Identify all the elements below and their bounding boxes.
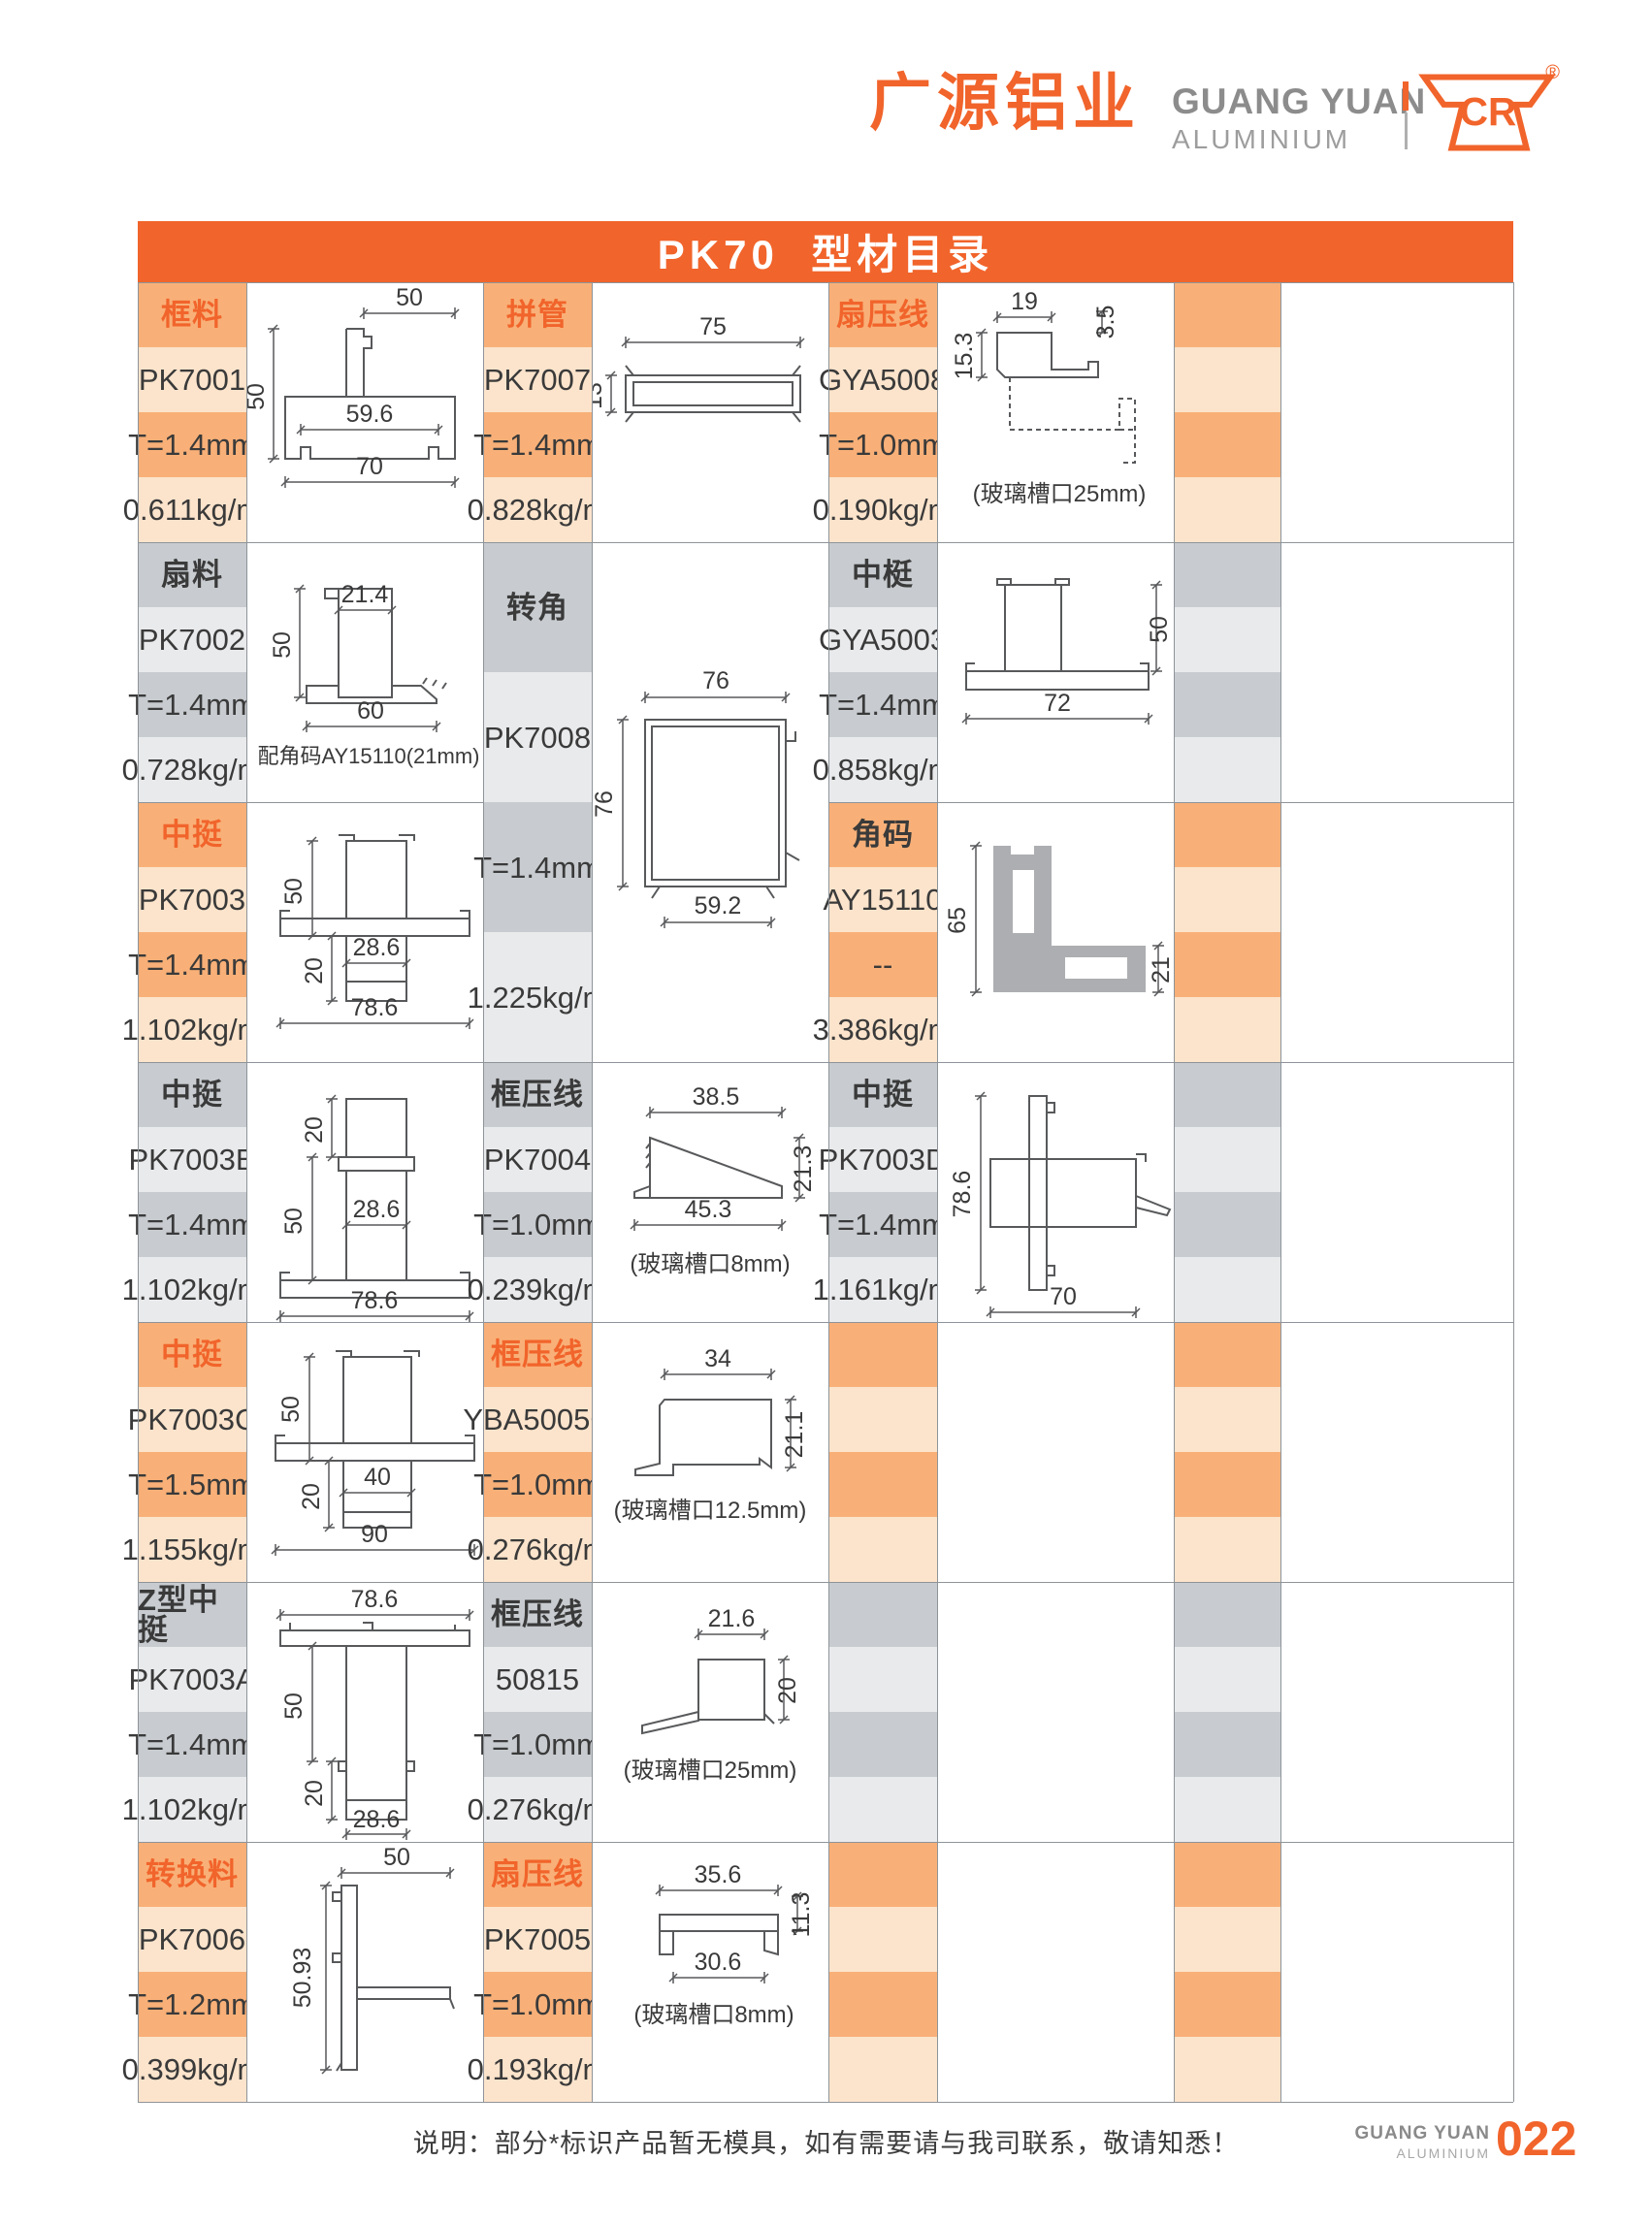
drawing-cell-empty-c4g1 xyxy=(1280,282,1513,542)
cell-category-PK7005: 扇压线 xyxy=(483,1842,592,1907)
cell-category-AY15110: 角码 xyxy=(828,802,937,867)
drawing-caption: (玻璃槽口8mm) xyxy=(630,1251,790,1277)
cell-weight-empty-c4g3 xyxy=(1174,997,1280,1062)
cell-weight-PK7001: 0.611kg/m xyxy=(138,477,246,542)
grid-hline xyxy=(138,542,1513,543)
drawing-cell-empty-c4g3 xyxy=(1280,802,1513,1062)
cell-category-empty-c4g3 xyxy=(1174,802,1280,867)
grid-vline xyxy=(592,282,593,2102)
drawing-cell-empty-c4g6 xyxy=(1280,1582,1513,1842)
dimension-label: 78.6 xyxy=(351,994,399,1021)
dimension-label: 50 xyxy=(280,1693,308,1720)
dimension-label: 59.2 xyxy=(695,892,742,919)
cell-thickness-PK7003: T=1.4mm xyxy=(138,932,246,997)
cell-weight-PK7006: 0.399kg/m xyxy=(138,2037,246,2102)
cell-thickness-PK7003C: T=1.5mm xyxy=(138,1452,246,1517)
grid-hline xyxy=(828,802,1513,803)
dimension-label: 20 xyxy=(301,957,328,984)
cell-thickness-PK7003B: T=1.4mm xyxy=(138,1192,246,1257)
cell-model-empty-c4g7 xyxy=(1174,1907,1280,1972)
drawing-cell-PK7001: 505059.670 xyxy=(246,282,483,542)
cell-thickness-PK7005: T=1.0mm xyxy=(483,1972,592,2037)
cell-thickness-YBA5005C: T=1.0mm xyxy=(483,1452,592,1517)
divider-gray-segment xyxy=(1405,113,1408,149)
cell-thickness-empty-c3g5 xyxy=(828,1452,937,1517)
cell-weight-PK7003: 1.102kg/m xyxy=(138,997,246,1062)
grid-vline xyxy=(1174,282,1175,2102)
dimension-label: 59.6 xyxy=(346,401,394,428)
cell-model-PK7007: PK7007 xyxy=(483,347,592,412)
cell-thickness-PK7003D: T=1.4mm xyxy=(828,1192,937,1257)
cell-weight-AY15110: 3.386kg/m xyxy=(828,997,937,1062)
cell-weight-empty-c4g4 xyxy=(1174,1257,1280,1322)
cell-category-PK7006: 转换料 xyxy=(138,1842,246,1907)
dimension-label: 28.6 xyxy=(353,1806,401,1833)
cell-category-PK7002: 扇料 xyxy=(138,542,246,607)
cell-weight-50815: 0.276kg/m xyxy=(483,1777,592,1842)
dimension-label: 21.1 xyxy=(781,1411,808,1459)
dimension-label: 30.6 xyxy=(695,1949,742,1976)
catalog-title: PK70 型材目录 xyxy=(138,221,1513,282)
dimension-label: 19 xyxy=(1011,288,1038,315)
cell-model-PK7005: PK7005 xyxy=(483,1907,592,1972)
cell-thickness-empty-c4g4 xyxy=(1174,1192,1280,1257)
cell-weight-empty-c3g6 xyxy=(828,1777,937,1842)
footer-brand-line2: ALUMINIUM xyxy=(1290,2146,1490,2160)
grid-hline xyxy=(138,1062,1513,1063)
profile-drawing-PK7004: 38.521.345.3(玻璃槽口8mm) xyxy=(592,1062,828,1322)
grid-hline xyxy=(138,282,1513,283)
dimension-label: 72 xyxy=(1044,690,1071,717)
brand-en-line1: GUANG YUAN xyxy=(1172,83,1426,119)
dimension-label: 50 xyxy=(280,1208,308,1235)
cell-weight-empty-c4g6 xyxy=(1174,1777,1280,1842)
cell-thickness-PK7006: T=1.2mm xyxy=(138,1972,246,2037)
brand-chinese-name: 广源铝业 xyxy=(869,72,1141,134)
brand-en-line2: ALUMINIUM xyxy=(1172,126,1426,153)
grid-hline xyxy=(138,1582,1513,1583)
grid-vline xyxy=(937,282,938,2102)
cell-thickness-PK7008: T=1.4mm xyxy=(483,802,592,932)
drawing-cell-empty-c4g2 xyxy=(1280,542,1513,802)
drawing-cell-PK7003: 502028.678.6 xyxy=(246,802,483,1062)
cell-model-50815: 50815 xyxy=(483,1647,592,1712)
cell-thickness-empty-c4g5 xyxy=(1174,1452,1280,1517)
drawing-cell-GYA5003: 5072 xyxy=(937,542,1174,802)
cell-weight-empty-c3g7 xyxy=(828,2037,937,2102)
cell-category-PK7003C: 中挺 xyxy=(138,1322,246,1387)
grid-vline xyxy=(1513,282,1514,2102)
dimension-label: 34 xyxy=(704,1345,731,1372)
dimension-label: 78.6 xyxy=(351,1586,399,1613)
profile-drawing-YBA5005C: 3421.1(玻璃槽口12.5mm) xyxy=(592,1322,828,1582)
dimension-label: 50 xyxy=(277,1396,305,1423)
drawing-cell-PK7003D: 78.670 xyxy=(937,1062,1174,1322)
cell-model-AY15110: AY15110 xyxy=(828,867,937,932)
dimension-label: 50 xyxy=(396,284,423,311)
profile-drawing-PK7001: 505059.670 xyxy=(246,282,483,542)
cell-category-PK7003A: Z型中挺 xyxy=(138,1582,246,1647)
cell-category-GYA5008: 扇压线 xyxy=(828,282,937,347)
drawing-cell-empty-c3g7 xyxy=(937,1842,1174,2102)
drawing-cell-empty-c4g5 xyxy=(1280,1322,1513,1582)
cell-weight-PK7002: 0.728kg/m xyxy=(138,737,246,802)
cell-category-PK7008: 转角 xyxy=(483,542,592,672)
cell-thickness-empty-c4g7 xyxy=(1174,1972,1280,2037)
cell-category-50815: 框压线 xyxy=(483,1582,592,1647)
profile-drawing-PK7007: 7513 xyxy=(592,282,828,542)
cell-weight-PK7003A: 1.102kg/m xyxy=(138,1777,246,1842)
drawing-caption: 配角码AY15110(21mm) xyxy=(257,744,479,768)
drawing-cell-YBA5005C: 3421.1(玻璃槽口12.5mm) xyxy=(592,1322,828,1582)
grid-hline xyxy=(138,1842,1513,1843)
cell-model-GYA5008: GYA5008 xyxy=(828,347,937,412)
dimension-label: 13 xyxy=(592,382,607,409)
cr-logo-shape: CR xyxy=(1418,70,1556,155)
profile-drawing-PK7006: 5050.93 xyxy=(246,1842,483,2102)
divider-orange-segment xyxy=(1403,81,1409,111)
dimension-label: 65 xyxy=(944,907,971,934)
cell-thickness-empty-c4g2 xyxy=(1174,672,1280,737)
dimension-label: 45.3 xyxy=(685,1196,732,1223)
drawing-cell-empty-c4g7 xyxy=(1280,1842,1513,2102)
profile-drawing-50815: 21.620(玻璃槽口25mm) xyxy=(592,1582,828,1842)
drawing-cell-PK7003C: 50204090 xyxy=(246,1322,483,1582)
cell-category-PK7003: 中挺 xyxy=(138,802,246,867)
cell-model-YBA5005C: YBA5005C xyxy=(483,1387,592,1452)
footer-brand-line1: GUANG YUAN xyxy=(1290,2124,1490,2143)
cell-weight-empty-c3g5 xyxy=(828,1517,937,1582)
drawing-cell-empty-c4g4 xyxy=(1280,1062,1513,1322)
cell-category-empty-c4g2 xyxy=(1174,542,1280,607)
cell-category-empty-c4g5 xyxy=(1174,1322,1280,1387)
profile-drawing-PK7003A: 78.6502028.6 xyxy=(246,1582,483,1842)
cell-category-empty-c3g7 xyxy=(828,1842,937,1907)
cell-weight-PK7004: 0.239kg/m xyxy=(483,1257,592,1322)
drawing-caption: (玻璃槽口25mm) xyxy=(973,481,1147,507)
dimension-label: 76 xyxy=(702,667,729,694)
dimension-label: 78.6 xyxy=(949,1171,976,1218)
drawing-cell-empty-c3g5 xyxy=(937,1322,1174,1582)
dimension-label: 50 xyxy=(246,383,270,410)
drawing-cell-PK7004: 38.521.345.3(玻璃槽口8mm) xyxy=(592,1062,828,1322)
cell-weight-empty-c4g5 xyxy=(1174,1517,1280,1582)
drawing-caption: (玻璃槽口12.5mm) xyxy=(614,1498,807,1524)
cell-model-empty-c3g6 xyxy=(828,1647,937,1712)
cell-thickness-PK7001: T=1.4mm xyxy=(138,412,246,477)
cell-weight-PK7003D: 1.161kg/m xyxy=(828,1257,937,1322)
cell-model-PK7002: PK7002 xyxy=(138,607,246,672)
cell-model-PK7008: PK7008 xyxy=(483,672,592,802)
cell-category-PK7001: 框料 xyxy=(138,282,246,347)
cell-category-PK7003D: 中挺 xyxy=(828,1062,937,1127)
dimension-label: 40 xyxy=(364,1464,391,1491)
dimension-label: 50 xyxy=(383,1844,410,1871)
cell-category-GYA5003: 中梃 xyxy=(828,542,937,607)
cell-model-empty-c3g5 xyxy=(828,1387,937,1452)
drawing-cell-AY15110: 6521 xyxy=(937,802,1174,1062)
cell-category-PK7004: 框压线 xyxy=(483,1062,592,1127)
cell-model-empty-c4g5 xyxy=(1174,1387,1280,1452)
cell-category-empty-c4g4 xyxy=(1174,1062,1280,1127)
profile-drawing-PK7003D: 78.670 xyxy=(937,1062,1174,1322)
cell-category-empty-c4g6 xyxy=(1174,1582,1280,1647)
dimension-label: 3.5 xyxy=(1092,306,1119,339)
cell-thickness-PK7004: T=1.0mm xyxy=(483,1192,592,1257)
dimension-label: 78.6 xyxy=(351,1287,399,1314)
cell-weight-YBA5005C: 0.276kg/m xyxy=(483,1517,592,1582)
dimension-label: 20 xyxy=(774,1677,801,1704)
cell-model-empty-c4g1 xyxy=(1174,347,1280,412)
cell-weight-empty-c4g7 xyxy=(1174,2037,1280,2102)
dimension-label: 15.3 xyxy=(951,333,978,380)
cell-model-GYA5003: GYA5003 xyxy=(828,607,937,672)
footer-brand: GUANG YUAN ALUMINIUM xyxy=(1290,2124,1490,2160)
grid-vline xyxy=(246,282,247,2102)
cell-model-PK7003B: PK7003B xyxy=(138,1127,246,1192)
dimension-label: 35.6 xyxy=(695,1861,742,1888)
cell-weight-GYA5008: 0.190kg/m xyxy=(828,477,937,542)
cell-model-PK7001: PK7001 xyxy=(138,347,246,412)
dimension-label: 20 xyxy=(301,1116,328,1144)
profile-drawing-GYA5003: 5072 xyxy=(937,542,1174,802)
cell-model-empty-c4g4 xyxy=(1174,1127,1280,1192)
grid-hline xyxy=(138,1322,1513,1323)
drawing-cell-PK7003B: 205028.678.6 xyxy=(246,1062,483,1322)
cell-model-PK7003C: PK7003C xyxy=(138,1387,246,1452)
dimension-label: 60 xyxy=(357,697,384,725)
dimension-label: 50 xyxy=(1146,616,1173,643)
dimension-label: 20 xyxy=(298,1483,325,1510)
cell-thickness-empty-c3g6 xyxy=(828,1712,937,1777)
dimension-label: 21.6 xyxy=(708,1605,756,1632)
dimension-label: 11.3 xyxy=(788,1892,815,1938)
cell-model-PK7003A: PK7003A xyxy=(138,1647,246,1712)
cell-model-PK7006: PK7006 xyxy=(138,1907,246,1972)
dimension-label: 70 xyxy=(1050,1283,1077,1310)
cell-model-PK7004: PK7004 xyxy=(483,1127,592,1192)
profile-drawing-PK7003C: 50204090 xyxy=(246,1322,483,1582)
profile-drawing-PK7003: 502028.678.6 xyxy=(246,802,483,1062)
dimension-label: 20 xyxy=(301,1780,328,1807)
cell-model-empty-c4g6 xyxy=(1174,1647,1280,1712)
profile-drawing-PK7003B: 205028.678.6 xyxy=(246,1062,483,1322)
cell-weight-empty-c4g1 xyxy=(1174,477,1280,542)
grid-vline xyxy=(138,282,139,2102)
cell-category-empty-c3g6 xyxy=(828,1582,937,1647)
registered-mark: ® xyxy=(1545,62,1560,84)
drawing-caption: (玻璃槽口8mm) xyxy=(633,2002,794,2028)
profile-drawing-PK7008: 767659.2 xyxy=(592,542,828,1062)
drawing-cell-empty-c3g6 xyxy=(937,1582,1174,1842)
cell-thickness-empty-c4g1 xyxy=(1174,412,1280,477)
cell-thickness-PK7003A: T=1.4mm xyxy=(138,1712,246,1777)
cell-weight-PK7003C: 1.155kg/m xyxy=(138,1517,246,1582)
company-cr-logo-icon: CR ® xyxy=(1418,70,1556,155)
catalog-page: 广源铝业 GUANG YUAN ALUMINIUM CR ® PK70 型材目录… xyxy=(0,0,1652,2225)
dimension-label: 76 xyxy=(592,790,618,818)
drawing-cell-GYA5008: 193.515.3(玻璃槽口25mm) xyxy=(937,282,1174,542)
cell-category-empty-c4g1 xyxy=(1174,282,1280,347)
brand-english-name: GUANG YUAN ALUMINIUM xyxy=(1172,83,1426,153)
dimension-label: 28.6 xyxy=(353,934,401,961)
cell-weight-PK7003B: 1.102kg/m xyxy=(138,1257,246,1322)
cell-model-empty-c3g7 xyxy=(828,1907,937,1972)
cell-weight-empty-c4g2 xyxy=(1174,737,1280,802)
cell-category-empty-c4g7 xyxy=(1174,1842,1280,1907)
cell-category-PK7003B: 中挺 xyxy=(138,1062,246,1127)
header-divider xyxy=(1403,81,1409,151)
grid-vline xyxy=(1280,282,1281,2102)
dimension-label: 50 xyxy=(280,878,308,905)
grid-vline xyxy=(483,282,484,2102)
dimension-label: 50.93 xyxy=(289,1948,316,2009)
drawing-cell-PK7008: 767659.2 xyxy=(592,542,828,1062)
cell-weight-PK7008: 1.225kg/m xyxy=(483,932,592,1062)
drawing-cell-PK7006: 5050.93 xyxy=(246,1842,483,2102)
svg-text:CR: CR xyxy=(1460,89,1517,134)
drawing-cell-PK7007: 7513 xyxy=(592,282,828,542)
dimension-label: 90 xyxy=(361,1521,388,1548)
dimension-label: 21.4 xyxy=(341,581,389,608)
cell-model-empty-c4g3 xyxy=(1174,867,1280,932)
page-number: 022 xyxy=(1496,2114,1576,2163)
cell-category-YBA5005C: 框压线 xyxy=(483,1322,592,1387)
dimension-label: 70 xyxy=(356,453,383,480)
cell-thickness-empty-c4g6 xyxy=(1174,1712,1280,1777)
profile-drawing-GYA5008: 193.515.3(玻璃槽口25mm) xyxy=(937,282,1174,542)
drawing-cell-PK7002: 21.45060配角码AY15110(21mm) xyxy=(246,542,483,802)
dimension-label: 28.6 xyxy=(353,1196,401,1223)
cell-thickness-PK7007: T=1.4mm xyxy=(483,412,592,477)
dimension-label: 21.3 xyxy=(790,1145,817,1193)
cell-weight-PK7005: 0.193kg/m xyxy=(483,2037,592,2102)
cell-model-empty-c4g2 xyxy=(1174,607,1280,672)
cell-category-empty-c3g5 xyxy=(828,1322,937,1387)
drawing-cell-50815: 21.620(玻璃槽口25mm) xyxy=(592,1582,828,1842)
cell-thickness-PK7002: T=1.4mm xyxy=(138,672,246,737)
dimension-label: 21 xyxy=(1148,956,1174,984)
cell-thickness-empty-c4g3 xyxy=(1174,932,1280,997)
dimension-label: 38.5 xyxy=(693,1083,740,1111)
cell-weight-PK7007: 0.828kg/m xyxy=(483,477,592,542)
cell-thickness-GYA5003: T=1.4mm xyxy=(828,672,937,737)
profile-drawing-PK7002: 21.45060配角码AY15110(21mm) xyxy=(246,542,483,802)
cell-thickness-50815: T=1.0mm xyxy=(483,1712,592,1777)
grid-vline xyxy=(828,282,829,2102)
dimension-label: 75 xyxy=(699,313,727,340)
cell-model-PK7003: PK7003 xyxy=(138,867,246,932)
cell-thickness-empty-c3g7 xyxy=(828,1972,937,2037)
dimension-label: 50 xyxy=(269,631,296,659)
grid-hline xyxy=(138,2102,1513,2103)
profile-drawing-PK7005: 35.611.330.6(玻璃槽口8mm) xyxy=(592,1842,828,2102)
drawing-cell-PK7003A: 78.6502028.6 xyxy=(246,1582,483,1842)
cell-category-PK7007: 拼管 xyxy=(483,282,592,347)
cell-thickness-AY15110: -- xyxy=(828,932,937,997)
profile-drawing-AY15110: 6521 xyxy=(937,802,1174,1062)
drawing-caption: (玻璃槽口25mm) xyxy=(624,1757,797,1784)
cell-weight-GYA5003: 0.858kg/m xyxy=(828,737,937,802)
cell-thickness-GYA5008: T=1.0mm xyxy=(828,412,937,477)
cell-model-PK7003D: PK7003D xyxy=(828,1127,937,1192)
grid-hline xyxy=(138,802,483,803)
drawing-cell-PK7005: 35.611.330.6(玻璃槽口8mm) xyxy=(592,1842,828,2102)
